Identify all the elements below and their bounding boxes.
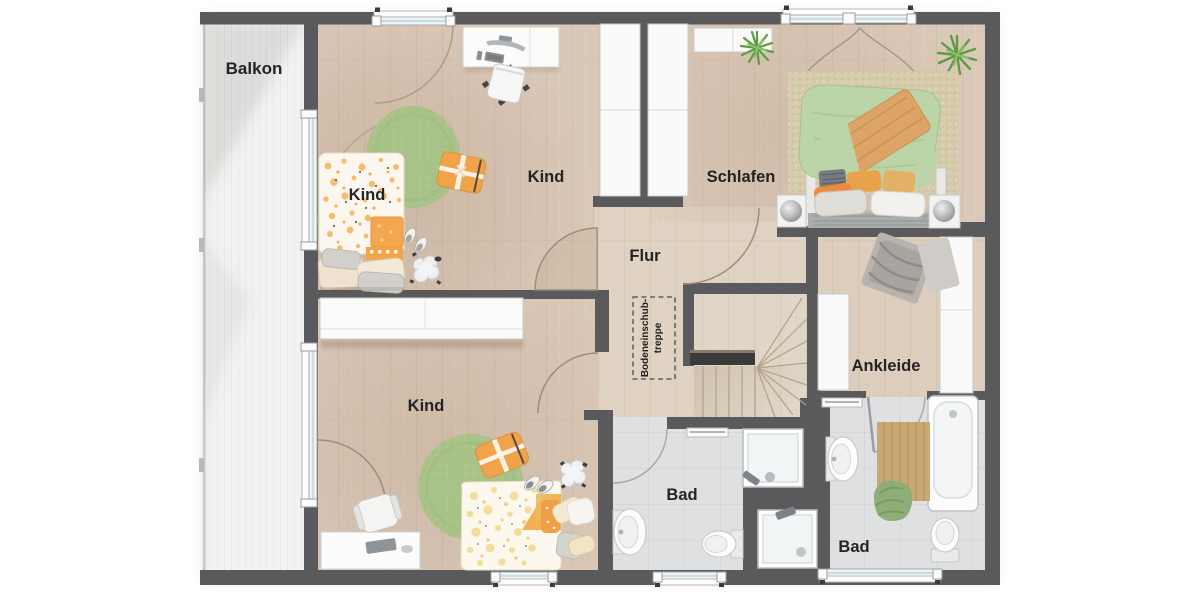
svg-text:Bodeneinschub-: Bodeneinschub- [640, 299, 651, 377]
svg-text:Kind: Kind [528, 168, 565, 186]
svg-text:Balkon: Balkon [226, 59, 283, 78]
svg-text:Bad: Bad [838, 538, 869, 556]
svg-text:Kind: Kind [349, 186, 386, 204]
svg-text:Ankleide: Ankleide [852, 357, 921, 375]
svg-text:treppe: treppe [653, 322, 664, 353]
svg-text:Kind: Kind [408, 397, 445, 415]
svg-text:Bad: Bad [666, 486, 697, 504]
svg-text:Flur: Flur [629, 247, 661, 265]
svg-text:Schlafen: Schlafen [707, 168, 776, 186]
